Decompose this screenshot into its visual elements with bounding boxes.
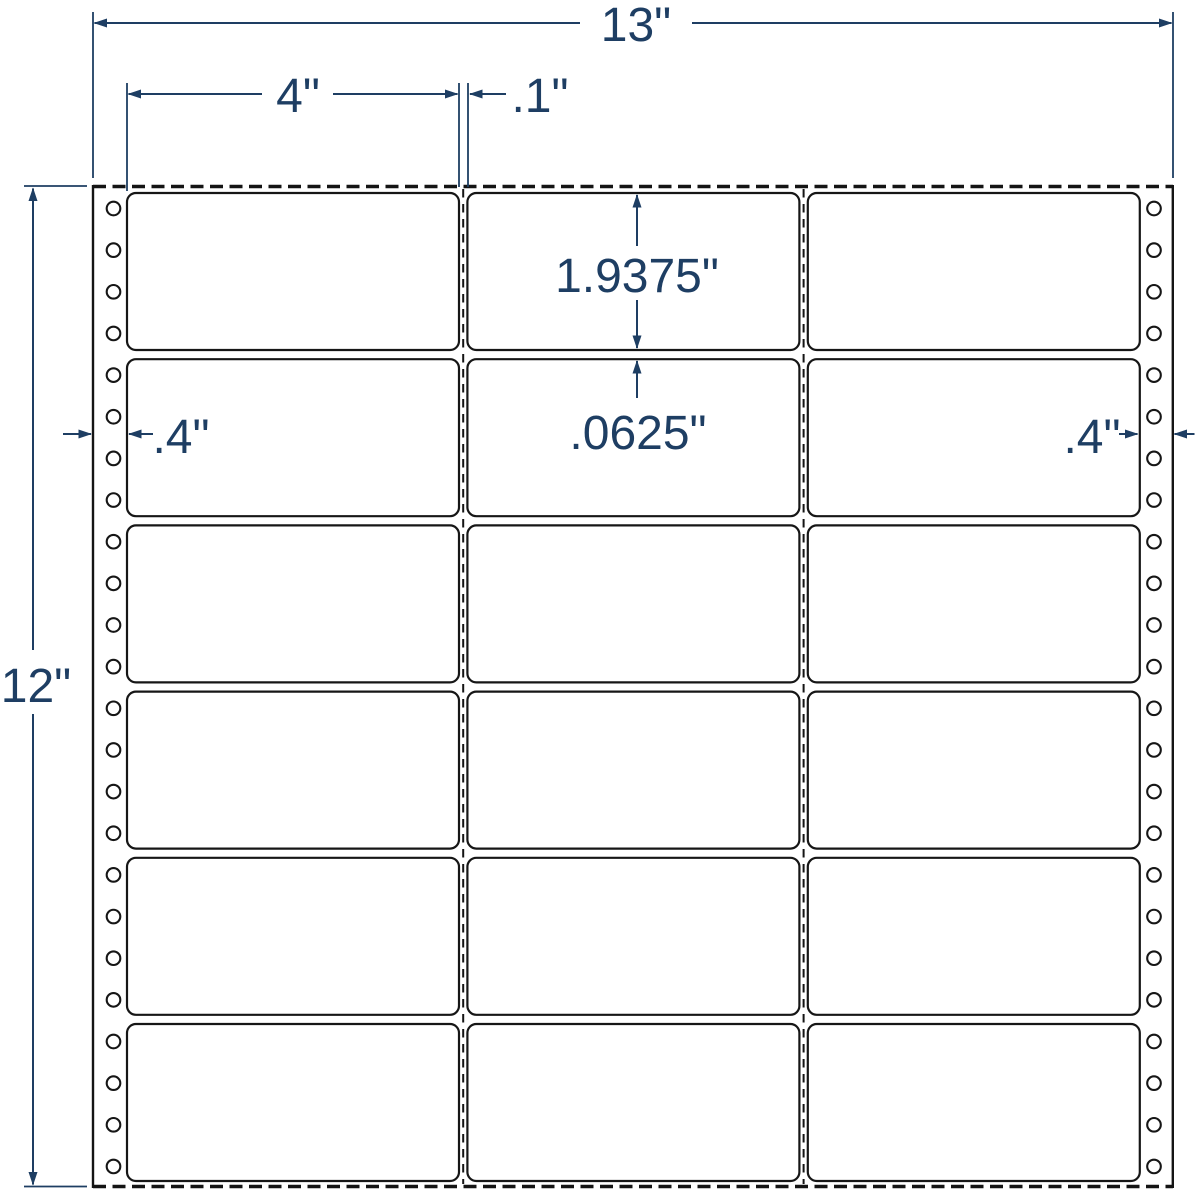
tractor-hole-column-left — [107, 202, 121, 1174]
tractor-hole — [1147, 1076, 1161, 1090]
right-margin-label: .4" — [1063, 411, 1120, 464]
dim-column-gap: .1" — [468, 70, 569, 187]
tractor-hole — [107, 1160, 121, 1174]
tractor-hole — [107, 910, 121, 924]
tractor-hole — [1147, 660, 1161, 674]
tractor-hole — [107, 702, 121, 716]
tractor-hole — [107, 368, 121, 382]
label-cell — [808, 193, 1140, 350]
tractor-hole — [107, 493, 121, 507]
sheet-width-label: 13" — [601, 0, 671, 52]
dim-sheet-width: 13" — [93, 0, 1173, 178]
label-cell — [127, 692, 459, 849]
label-cell — [808, 692, 1140, 849]
label-cell — [467, 1024, 799, 1181]
tractor-hole — [1147, 410, 1161, 424]
tractor-hole — [107, 618, 121, 632]
tractor-hole — [107, 410, 121, 424]
tractor-hole — [107, 993, 121, 1007]
tractor-hole — [1147, 993, 1161, 1007]
tractor-hole — [107, 535, 121, 549]
tractor-hole — [107, 1118, 121, 1132]
column-gap-label: .1" — [511, 70, 568, 123]
tractor-hole — [107, 826, 121, 840]
tractor-hole — [107, 452, 121, 466]
label-cell — [127, 193, 459, 350]
label-width-label: 4" — [276, 70, 320, 123]
dim-sheet-height: 12" — [1, 186, 87, 1187]
tractor-hole — [1147, 577, 1161, 591]
tractor-hole — [1147, 868, 1161, 882]
label-cell — [808, 858, 1140, 1015]
tractor-hole — [1147, 1160, 1161, 1174]
tractor-hole — [1147, 327, 1161, 341]
tractor-hole — [1147, 493, 1161, 507]
tractor-hole — [1147, 951, 1161, 965]
row-gap-label: .0625" — [569, 407, 706, 460]
tractor-hole — [107, 202, 121, 216]
label-sheet-diagram: 13" 4" .1" 12" 1.9375" — [0, 0, 1195, 1189]
tractor-hole-column-right — [1147, 202, 1161, 1174]
tractor-hole — [1147, 285, 1161, 299]
tractor-hole — [107, 1076, 121, 1090]
label-cell — [127, 525, 459, 682]
tractor-hole — [107, 660, 121, 674]
label-cell — [467, 858, 799, 1015]
tractor-hole — [1147, 618, 1161, 632]
dim-label-width: 4" — [127, 70, 459, 191]
tractor-hole — [1147, 910, 1161, 924]
label-cell — [808, 1024, 1140, 1181]
tractor-hole — [1147, 368, 1161, 382]
tractor-hole — [1147, 1035, 1161, 1049]
label-cell — [808, 525, 1140, 682]
label-cell — [127, 858, 459, 1015]
tractor-hole — [107, 577, 121, 591]
tractor-hole — [1147, 202, 1161, 216]
left-margin-label: .4" — [152, 411, 209, 464]
tractor-hole — [107, 868, 121, 882]
label-grid — [127, 193, 1140, 1181]
tractor-hole — [1147, 535, 1161, 549]
label-height-label: 1.9375" — [555, 250, 719, 303]
diagram-canvas: 13" 4" .1" 12" 1.9375" — [0, 0, 1195, 1189]
tractor-hole — [107, 785, 121, 799]
tractor-hole — [1147, 1118, 1161, 1132]
tractor-hole — [1147, 826, 1161, 840]
tractor-hole — [107, 327, 121, 341]
tractor-hole — [1147, 702, 1161, 716]
tractor-hole — [107, 285, 121, 299]
tractor-hole — [107, 743, 121, 757]
tractor-hole — [107, 243, 121, 257]
label-cell — [467, 692, 799, 849]
tractor-hole — [1147, 743, 1161, 757]
tractor-hole — [1147, 243, 1161, 257]
tractor-hole — [1147, 452, 1161, 466]
tractor-hole — [107, 1035, 121, 1049]
tractor-hole — [107, 951, 121, 965]
label-cell — [467, 525, 799, 682]
label-cell — [127, 1024, 459, 1181]
tractor-hole — [1147, 785, 1161, 799]
sheet-height-label: 12" — [1, 660, 71, 713]
